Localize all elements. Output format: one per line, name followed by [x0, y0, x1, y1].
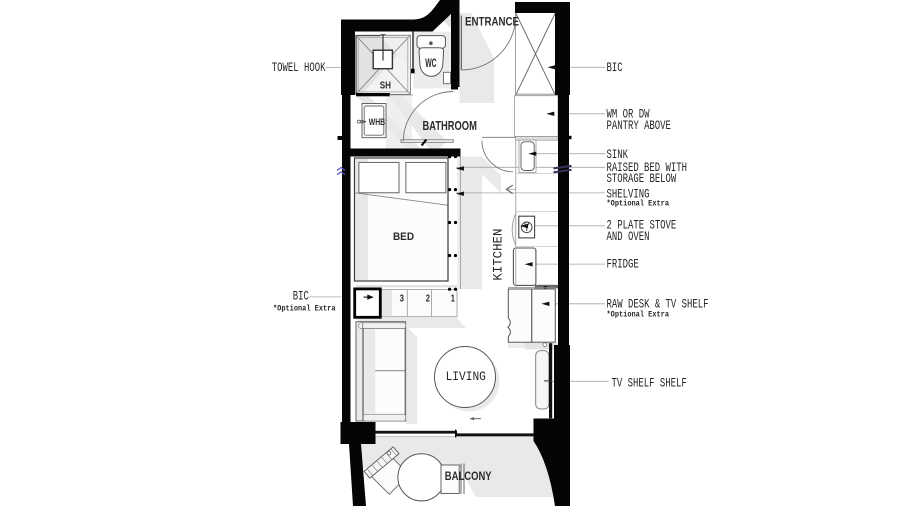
svg-text:3: 3	[400, 293, 404, 304]
svg-text:*Optional Extra: *Optional Extra	[607, 200, 670, 209]
svg-text:KITCHEN: KITCHEN	[492, 229, 506, 281]
svg-text:BATHROOM: BATHROOM	[423, 118, 477, 133]
svg-text:PANTRY ABOVE: PANTRY ABOVE	[607, 119, 671, 133]
svg-text:BED: BED	[393, 231, 414, 243]
svg-text:*Optional Extra: *Optional Extra	[273, 304, 336, 313]
svg-text:BIC: BIC	[607, 61, 623, 75]
svg-text:TOWEL HOOK: TOWEL HOOK	[272, 61, 326, 75]
svg-text:BALCONY: BALCONY	[445, 471, 492, 483]
svg-text:STORAGE BELOW: STORAGE BELOW	[607, 172, 677, 186]
svg-text:LIVING: LIVING	[446, 370, 486, 384]
svg-text:2: 2	[426, 293, 430, 304]
svg-text:ENTRANCE: ENTRANCE	[465, 15, 519, 29]
svg-text:*Optional Extra: *Optional Extra	[607, 311, 670, 320]
svg-text:FRIDGE: FRIDGE	[607, 258, 639, 272]
svg-text:SH: SH	[380, 81, 391, 92]
svg-text:WHB: WHB	[369, 117, 386, 127]
svg-text:TV SHELF SHELF: TV SHELF SHELF	[612, 377, 687, 391]
svg-text:RAW DESK & TV SHELF: RAW DESK & TV SHELF	[607, 298, 709, 312]
svg-text:BIC: BIC	[293, 290, 309, 304]
svg-text:WC: WC	[425, 56, 437, 70]
svg-text:1: 1	[451, 293, 455, 304]
svg-text:AND OVEN: AND OVEN	[607, 230, 650, 244]
svg-text:SINK: SINK	[607, 148, 629, 162]
